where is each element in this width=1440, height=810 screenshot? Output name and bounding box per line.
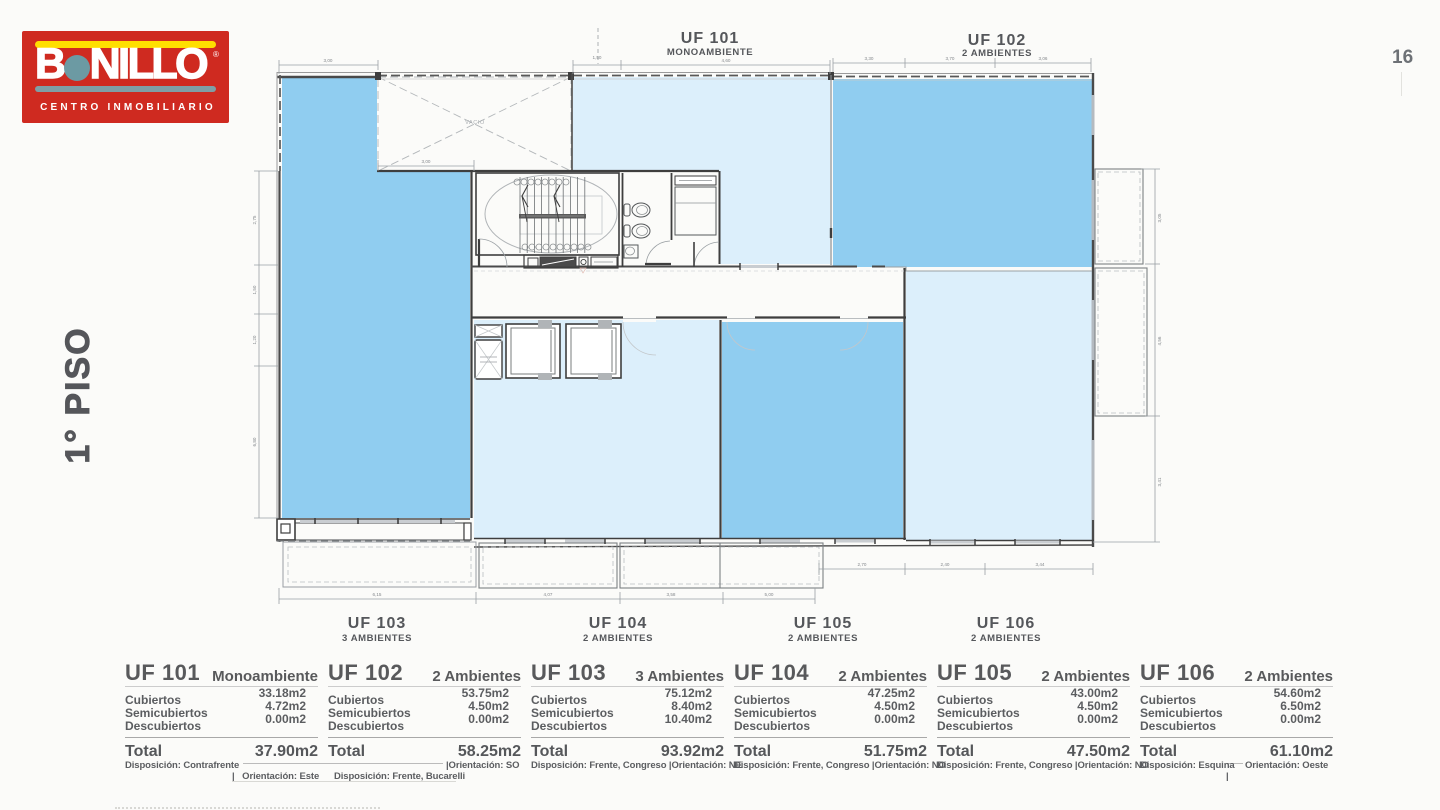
svg-text:4,07: 4,07: [544, 592, 553, 597]
svg-text:UF 104: UF 104: [589, 615, 647, 632]
svg-text:1,50: 1,50: [252, 285, 257, 294]
svg-text:2 AMBIENTES: 2 AMBIENTES: [962, 48, 1032, 59]
svg-text:1,50: 1,50: [593, 55, 602, 60]
svg-text:1,20: 1,20: [252, 335, 257, 344]
svg-text:3,06: 3,06: [1039, 56, 1048, 61]
svg-text:3,58: 3,58: [667, 592, 676, 597]
svg-text:3 AMBIENTES: 3 AMBIENTES: [342, 633, 412, 644]
svg-text:2,75: 2,75: [252, 215, 257, 224]
svg-text:3,41: 3,41: [1157, 477, 1162, 486]
svg-text:3,70: 3,70: [946, 56, 955, 61]
svg-text:UF 103: UF 103: [348, 615, 406, 632]
svg-text:6,80: 6,80: [252, 437, 257, 446]
svg-text:UF 105: UF 105: [794, 615, 852, 632]
svg-text:2 AMBIENTES: 2 AMBIENTES: [971, 633, 1041, 644]
svg-text:2,40: 2,40: [941, 562, 950, 567]
svg-text:UF 106: UF 106: [977, 615, 1035, 632]
svg-text:4,56: 4,56: [1157, 336, 1162, 345]
svg-text:UF 102: UF 102: [968, 32, 1026, 49]
svg-text:MONOAMBIENTE: MONOAMBIENTE: [667, 47, 753, 58]
svg-text:5,00: 5,00: [765, 592, 774, 597]
svg-text:2,70: 2,70: [858, 562, 867, 567]
svg-text:6,15: 6,15: [373, 592, 382, 597]
svg-text:2 AMBIENTES: 2 AMBIENTES: [788, 633, 858, 644]
svg-text:2 AMBIENTES: 2 AMBIENTES: [583, 633, 653, 644]
svg-text:4,60: 4,60: [722, 58, 731, 63]
svg-text:UF 101: UF 101: [681, 30, 739, 47]
svg-text:3,05: 3,05: [1157, 213, 1162, 222]
svg-text:3,00: 3,00: [324, 58, 333, 63]
svg-text:3,00: 3,00: [422, 159, 431, 164]
svg-text:3,30: 3,30: [865, 56, 874, 61]
svg-text:VACIO: VACIO: [465, 120, 485, 126]
svg-text:3,44: 3,44: [1036, 562, 1045, 567]
